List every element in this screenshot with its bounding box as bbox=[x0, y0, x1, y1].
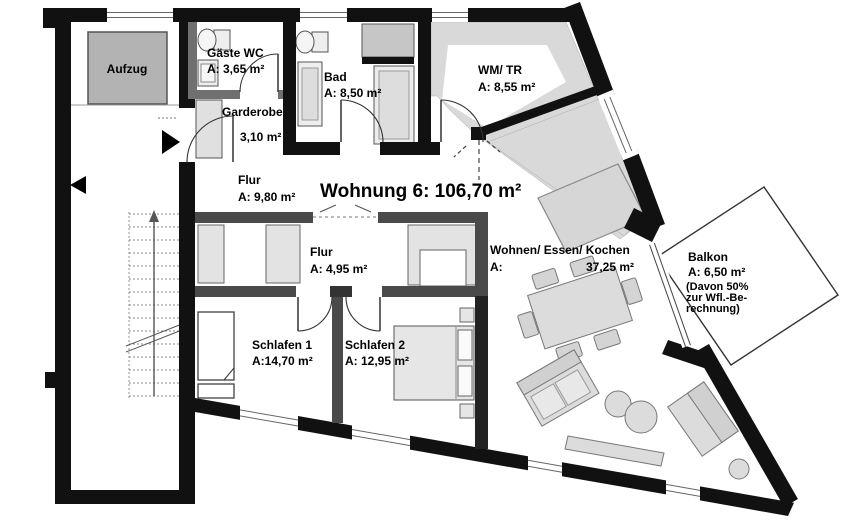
label-wm-tr-area: A: 8,55 m² bbox=[478, 80, 535, 94]
vanity-icon bbox=[298, 62, 322, 126]
single-bed-icon bbox=[198, 312, 234, 398]
label-aufzug: Aufzug bbox=[107, 62, 148, 76]
label-bad: Bad bbox=[324, 70, 347, 84]
label-flur: Flur bbox=[238, 173, 261, 187]
label-gaeste-wc-area: A: 3,65 m² bbox=[207, 62, 264, 76]
sideboard-icon bbox=[565, 436, 664, 466]
boundary-dashes bbox=[454, 140, 500, 180]
label-flur-innen: Flur bbox=[310, 245, 333, 259]
page-title: Wohnung 6: 106,70 m² bbox=[320, 181, 521, 202]
label-balkon-area: A: 6,50 m² bbox=[688, 265, 745, 279]
floor-plan: Aufzug Gäste WC A: 3,65 m² Garderobe 3,1… bbox=[0, 0, 850, 520]
entrance-arrow-icon bbox=[162, 130, 180, 154]
label-garderobe: Garderobe bbox=[222, 105, 283, 119]
label-schlafen1-area: A:14,70 m² bbox=[252, 354, 313, 368]
side-table-icon bbox=[729, 459, 749, 479]
label-flur-area: A: 9,80 m² bbox=[238, 190, 295, 204]
label-bad-area: A: 8,50 m² bbox=[324, 86, 381, 100]
label-garderobe-area: 3,10 m² bbox=[240, 130, 281, 144]
stairs-icon bbox=[126, 210, 182, 398]
label-balkon: Balkon bbox=[688, 250, 728, 264]
label-balkon-note3: rechnung) bbox=[686, 303, 740, 315]
label-schlafen2-area: A: 12,95 m² bbox=[345, 354, 409, 368]
label-gaeste-wc: Gäste WC bbox=[207, 46, 264, 60]
direction-arrow-icon bbox=[70, 176, 86, 194]
label-schlafen2: Schlafen 2 bbox=[345, 338, 405, 352]
floor-plan-page: Aufzug Gäste WC A: 3,65 m² Garderobe 3,1… bbox=[0, 0, 850, 520]
label-wohnen: Wohnen/ Essen/ Kochen bbox=[490, 243, 630, 257]
label-schlafen1: Schlafen 1 bbox=[252, 338, 312, 352]
label-wohnen-area-prefix: A: bbox=[490, 260, 503, 274]
toilet-icon-bad bbox=[296, 31, 328, 53]
sofa-icon bbox=[517, 350, 599, 426]
label-wohnen-area: 37,25 m² bbox=[586, 260, 634, 274]
label-flur-innen-area: A: 4,95 m² bbox=[310, 262, 367, 276]
bathtub-icon bbox=[362, 24, 414, 64]
shower-icon bbox=[374, 66, 414, 144]
label-wm-tr: WM/ TR bbox=[478, 63, 522, 77]
coffee-table-icon bbox=[605, 391, 657, 433]
